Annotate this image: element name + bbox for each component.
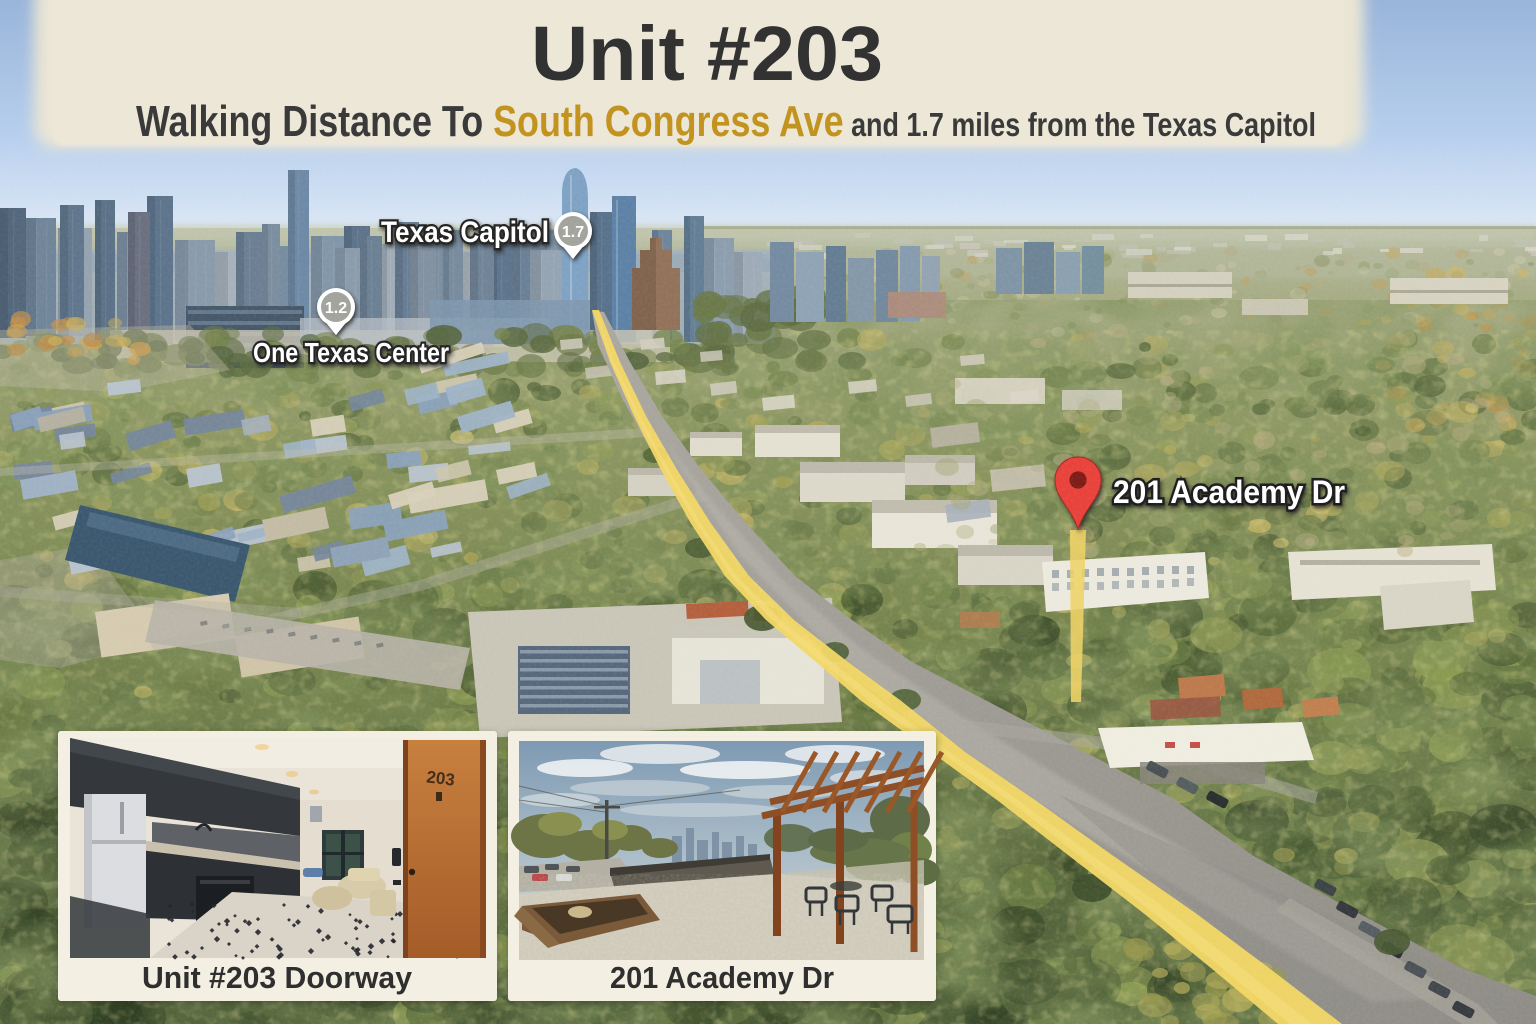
svg-text:201 Academy Dr: 201 Academy Dr	[610, 960, 834, 995]
svg-text:Unit #203: Unit #203	[531, 11, 883, 97]
svg-text:203: 203	[425, 767, 455, 789]
svg-text:Unit #203 Doorway: Unit #203 Doorway	[142, 960, 413, 995]
